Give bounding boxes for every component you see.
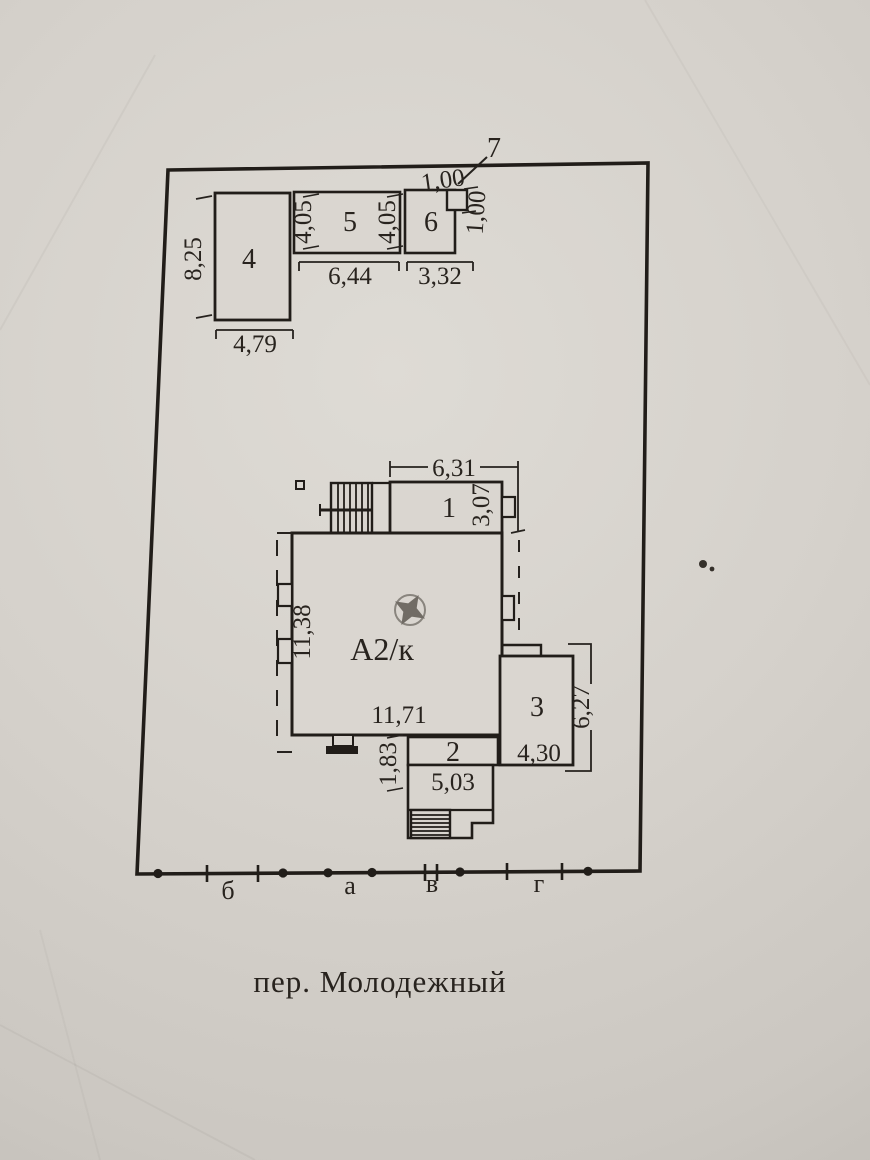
dim-label: 5,03 [431, 769, 475, 796]
dim-label: 4,05 [290, 200, 317, 244]
axis-letter-g: г [534, 869, 545, 898]
dim-structure7-height: 1,00 [462, 187, 492, 235]
step-connector [502, 645, 541, 656]
stairs-bottom [411, 810, 450, 838]
building-1-right-bump [502, 497, 515, 517]
axis-letter-b: б [221, 876, 234, 905]
dim-label: 6,31 [432, 455, 476, 482]
building-4: 4 [215, 193, 290, 320]
site-plan-drawing: 4 8,25 4,79 5 4,05 4,05 6,44 6 3, [0, 0, 870, 1160]
building-6-label: 6 [424, 207, 438, 238]
small-post-marker [296, 481, 304, 489]
dim-building5-height-right: 4,05 [374, 194, 403, 249]
building-2: 2 [408, 737, 498, 768]
dim-label: 6,44 [328, 263, 372, 290]
dim-building4-width: 4,79 [216, 330, 293, 358]
dim-label: 6,27 [568, 685, 595, 729]
dim-label: 1,00 [462, 190, 492, 236]
axis-letter-a: а [344, 871, 356, 900]
dim-building4-height: 8,25 [180, 196, 212, 318]
dim-building2-height: 1,83 [375, 735, 403, 791]
solid-step [326, 735, 358, 754]
street-name: пер. Молодежный [253, 964, 506, 999]
dim-building1-width: 6,31 [390, 455, 518, 482]
dim-building6-width: 3,32 [407, 262, 473, 290]
dim-label: 11,71 [371, 702, 426, 729]
ink-speck [699, 560, 714, 571]
building-4-label: 4 [242, 244, 256, 275]
building-2-label: 2 [446, 737, 460, 768]
dim-label: 1,83 [375, 742, 402, 786]
left-porch-lower [278, 639, 292, 663]
dim-building5-height-left: 4,05 [290, 194, 319, 249]
dim-building2-width: 5,03 [431, 769, 475, 796]
dim-label: 3,07 [468, 483, 495, 527]
building-1-label: 1 [442, 493, 456, 524]
dim-label: 8,25 [180, 237, 207, 281]
building-3-label: 3 [530, 692, 544, 723]
dim-building5-width: 6,44 [299, 262, 399, 290]
building-5-label: 5 [343, 207, 357, 238]
stairs-top [320, 483, 390, 534]
right-porch [502, 596, 514, 620]
survey-marks: б а в г [153, 863, 592, 905]
dim-label: 4,79 [233, 331, 277, 358]
structure-7-label: 7 [487, 133, 501, 164]
scanned-plan-page: 4 8,25 4,79 5 4,05 4,05 6,44 6 3, [0, 0, 870, 1160]
axis-letter-v: в [426, 869, 438, 898]
dim-label: 4,30 [517, 740, 561, 767]
building-1: 1 [390, 482, 515, 533]
building-main-label: А2/к [350, 631, 414, 667]
dim-building3-width: 4,30 [517, 740, 561, 767]
left-porch-upper [278, 584, 292, 606]
dim-label: 3,32 [418, 263, 462, 290]
dim-main-width: 11,71 [371, 702, 426, 729]
dim-label: 4,05 [374, 200, 401, 244]
